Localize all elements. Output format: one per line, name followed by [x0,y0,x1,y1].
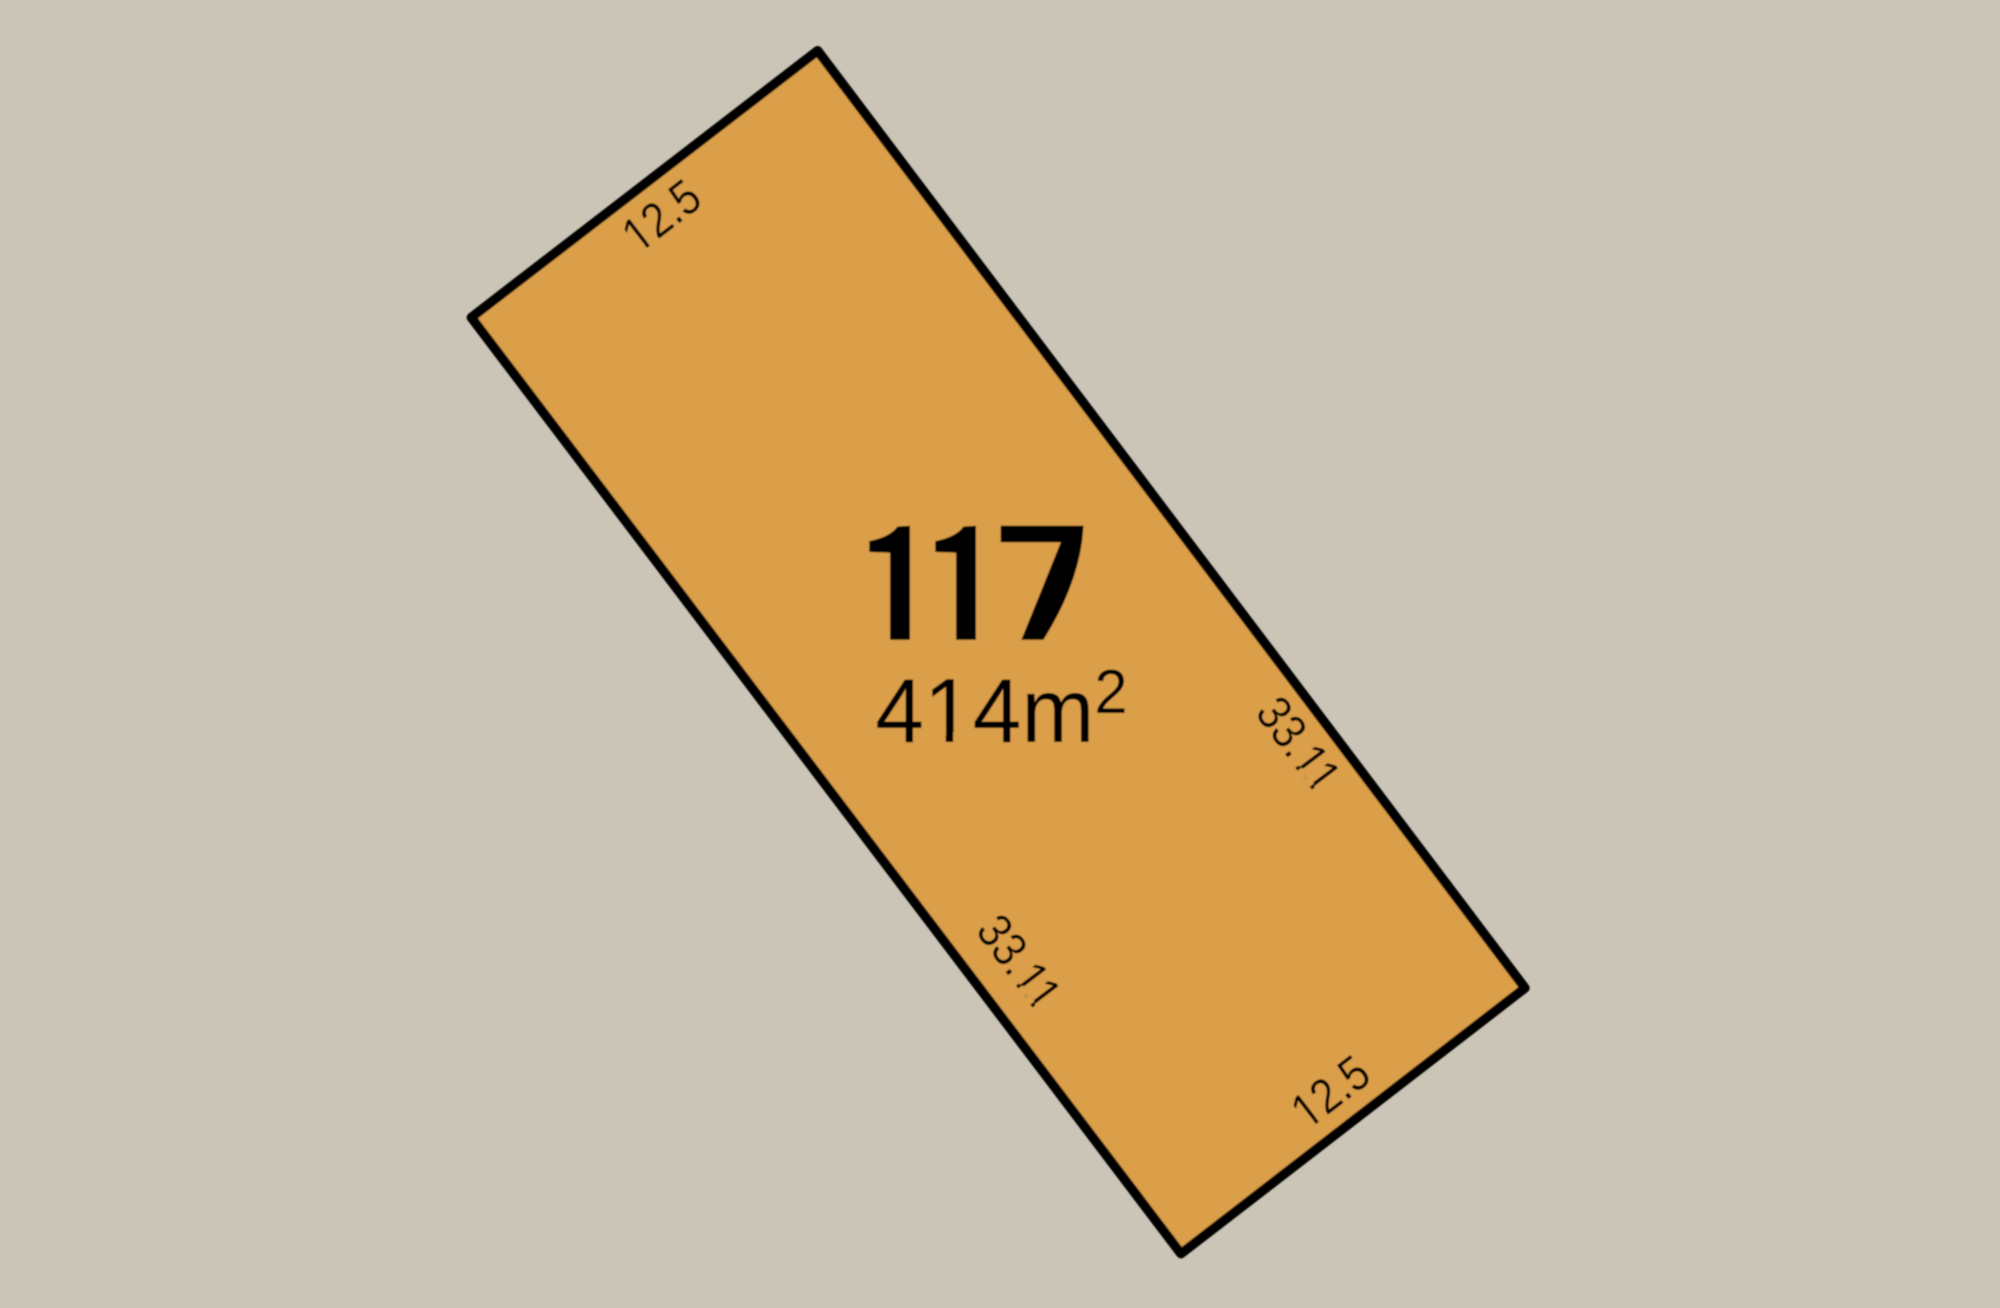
svg-text:414m2: 414m2 [875,657,1127,762]
